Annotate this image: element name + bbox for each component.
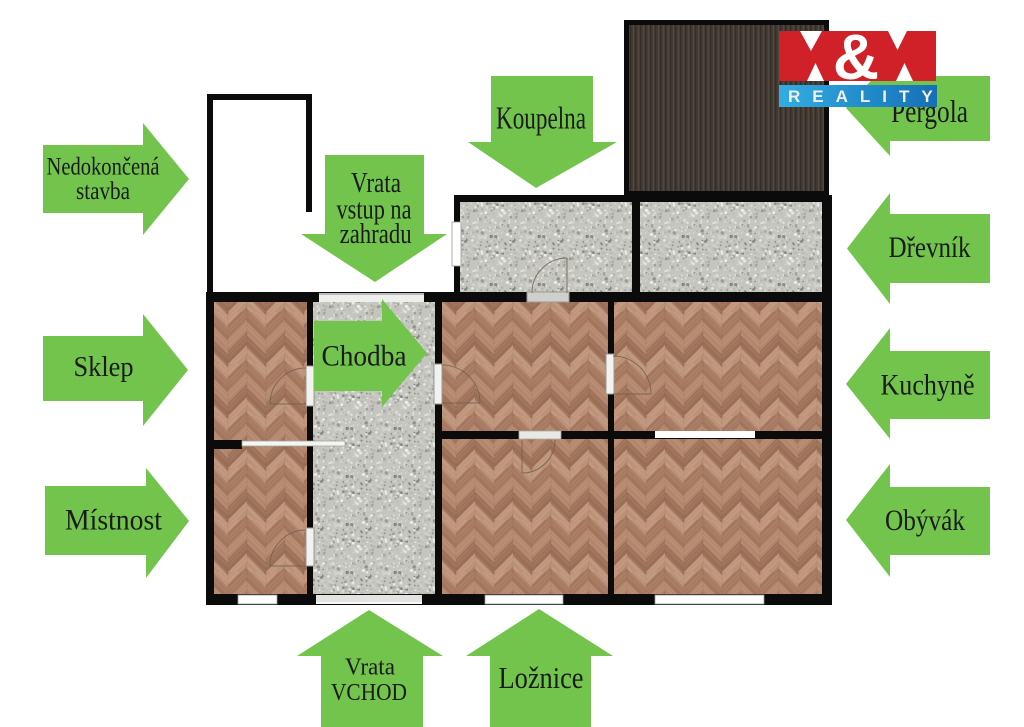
svg-text:Vrata: Vrata	[345, 655, 395, 681]
svg-text:Kuchyně: Kuchyně	[881, 369, 975, 402]
svg-text:Obývák: Obývák	[885, 504, 965, 537]
svg-text:Nedokončená: Nedokončená	[47, 153, 160, 180]
svg-text:Koupelna: Koupelna	[496, 99, 586, 135]
svg-text:Dřevník: Dřevník	[889, 231, 971, 264]
svg-text:zahradu: zahradu	[340, 219, 412, 250]
svg-text:Chodba: Chodba	[322, 340, 407, 373]
svg-text:VCHOD: VCHOD	[331, 680, 407, 706]
svg-text:stavba: stavba	[76, 178, 130, 205]
svg-text:Ložnice: Ložnice	[499, 660, 584, 695]
svg-text:Místnost: Místnost	[65, 503, 163, 536]
svg-text:&: &	[833, 21, 879, 93]
svg-text:Sklep: Sklep	[74, 351, 134, 383]
svg-text:REALITY: REALITY	[788, 87, 945, 106]
